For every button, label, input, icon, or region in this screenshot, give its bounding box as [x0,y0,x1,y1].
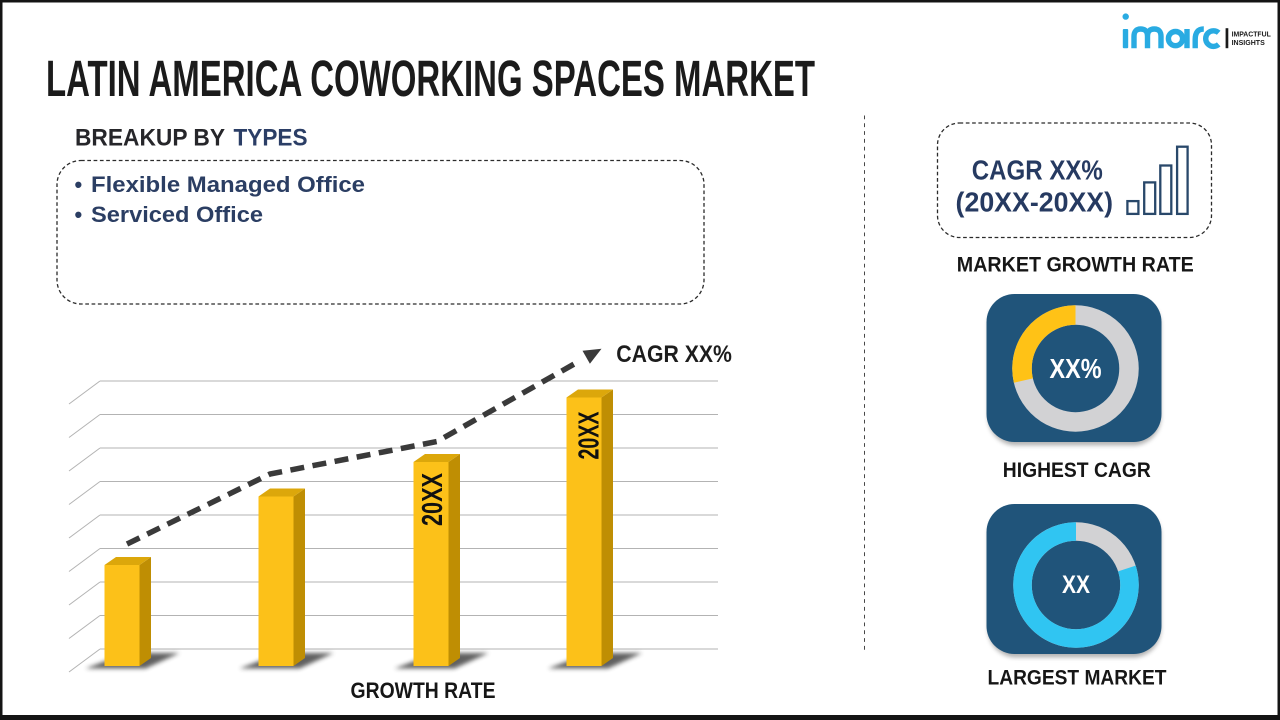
svg-text:(20XX-20XX): (20XX-20XX) [956,186,1114,217]
svg-text:XX%: XX% [1050,353,1102,384]
svg-text:LATIN AMERICA COWORKING SPACES: LATIN AMERICA COWORKING SPACES MARKET [46,50,815,107]
svg-text:TYPES: TYPES [234,125,308,152]
svg-text:CAGR XX%: CAGR XX% [616,341,732,368]
svg-text:MARKET GROWTH RATE: MARKET GROWTH RATE [957,254,1194,277]
svg-text:HIGHEST CAGR: HIGHEST CAGR [1003,459,1151,482]
svg-text:20XX: 20XX [417,473,449,526]
svg-text:Serviced Office: Serviced Office [91,202,263,227]
svg-text:•: • [75,202,83,227]
svg-text:GROWTH RATE: GROWTH RATE [351,678,496,703]
svg-text:BREAKUP BY: BREAKUP BY [75,125,225,152]
svg-text:LARGEST MARKET: LARGEST MARKET [988,667,1167,690]
svg-text:•: • [75,172,83,197]
svg-text:Flexible Managed Office: Flexible Managed Office [91,172,365,197]
svg-text:XX: XX [1062,571,1090,599]
svg-text:INSIGHTS: INSIGHTS [1232,38,1265,47]
svg-text:20XX: 20XX [574,411,606,459]
svg-text:CAGR XX%: CAGR XX% [972,154,1103,185]
